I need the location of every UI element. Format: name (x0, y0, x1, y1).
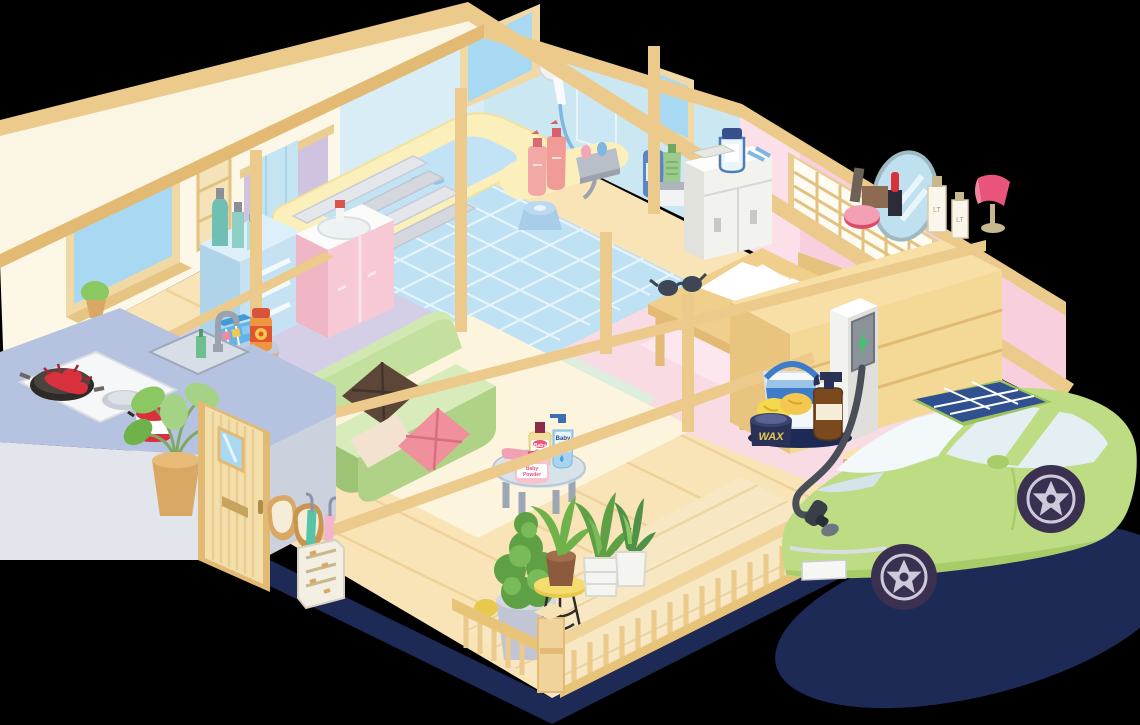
sill-plant-leaves (81, 281, 109, 303)
illustration-canvas: LT LT (0, 0, 1140, 725)
white-planter-2 (616, 552, 646, 586)
post-laundry-back (648, 46, 660, 214)
car-wash-supplies: WAX (748, 364, 852, 448)
baby-lotion-label: Baby (534, 443, 546, 449)
stand-box (298, 540, 344, 608)
door-knob (258, 500, 263, 514)
side-mirror (987, 455, 1009, 469)
wooden-door (198, 400, 270, 592)
post-laundry-front (600, 232, 612, 354)
svg-text:LT: LT (933, 207, 941, 214)
post-bath-front (455, 88, 467, 332)
table-lamp (975, 175, 1010, 233)
license-plate (802, 560, 846, 580)
baby-powder-label-2: Powder (523, 472, 541, 478)
post-bedroom-front (682, 294, 694, 432)
wax-can: WAX (750, 413, 792, 446)
house-ev-cutaway-illustration: LT LT (0, 0, 1140, 725)
svg-text:LT: LT (956, 217, 964, 224)
lipstick (888, 190, 902, 216)
rear-wheel (1017, 465, 1085, 533)
white-planter-1 (584, 558, 618, 596)
plant-pot (152, 460, 200, 516)
wax-label: WAX (758, 431, 784, 443)
soap-bottle (196, 336, 206, 358)
front-wheel (871, 544, 937, 610)
